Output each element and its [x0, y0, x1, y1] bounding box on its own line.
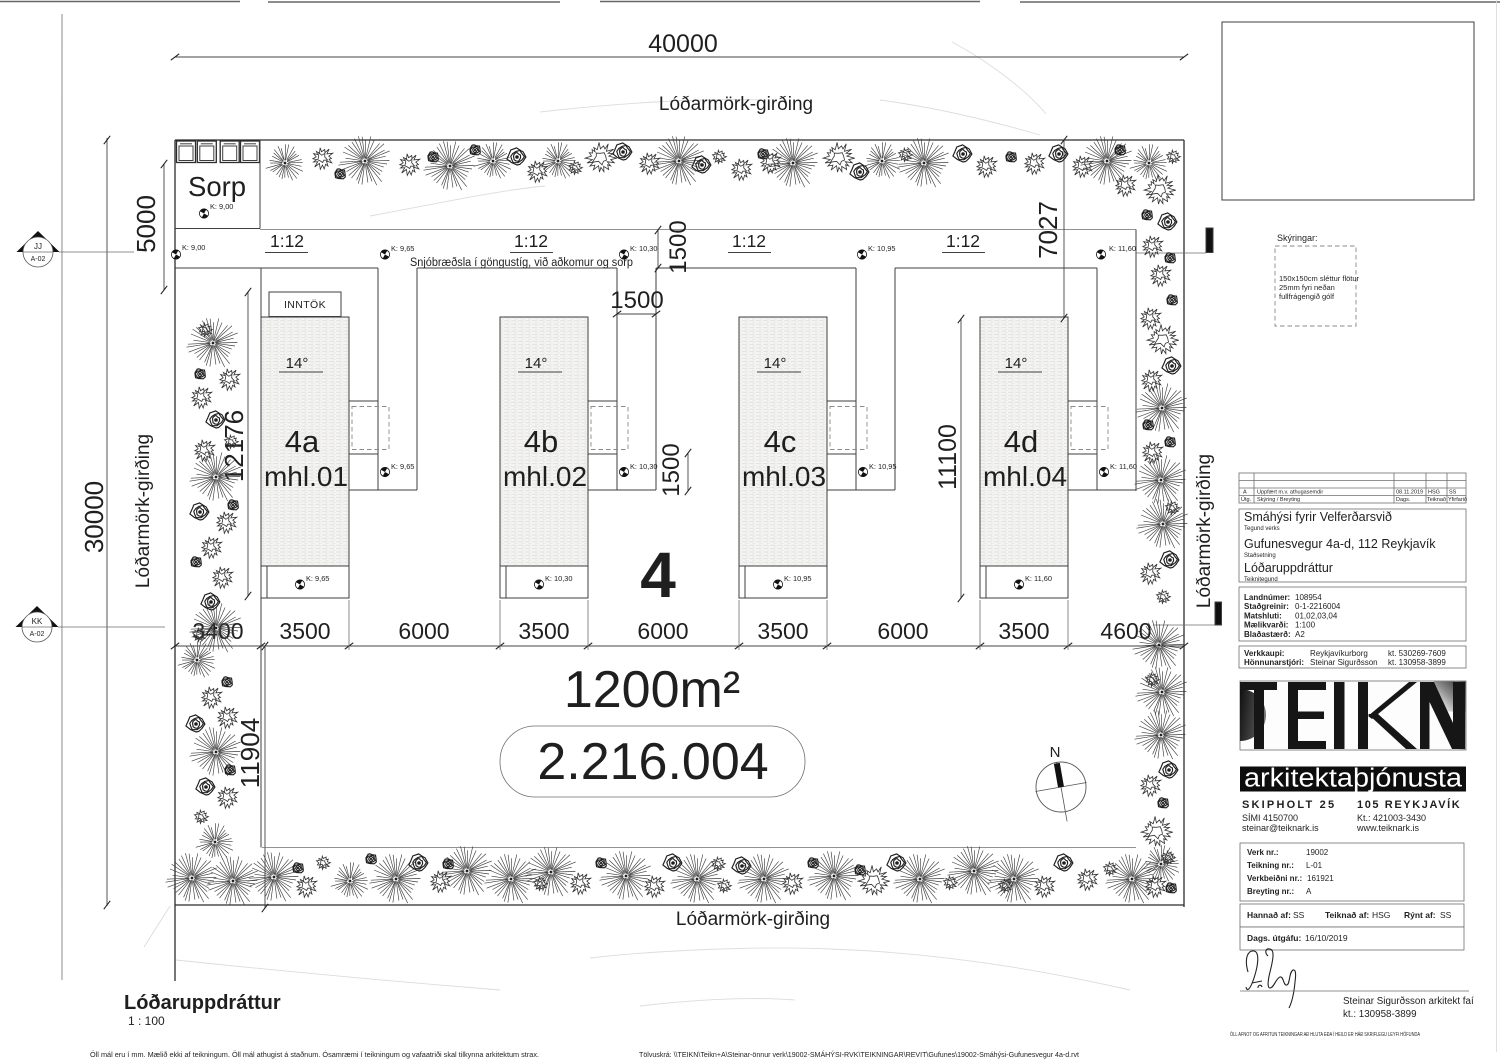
svg-text:Teiknað: Teiknað [1427, 496, 1446, 503]
svg-text:Tegund verks: Tegund verks [1244, 526, 1280, 532]
svg-text:3500: 3500 [279, 618, 330, 644]
svg-text:Skýring / Breyting: Skýring / Breyting [1257, 497, 1300, 503]
svg-text:1:12: 1:12 [270, 231, 304, 251]
svg-text:K: 9,00: K: 9,00 [182, 243, 205, 252]
svg-text:Snjóbræðsla í göngustíg, við a: Snjóbræðsla í göngustíg, við aðkomur og … [410, 257, 633, 269]
svg-text:150x150cm sléttur flötur: 150x150cm sléttur flötur [1279, 274, 1360, 283]
svg-text:3500: 3500 [757, 618, 808, 644]
svg-text:Blaðastærð:: Blaðastærð: [1244, 630, 1291, 639]
svg-text:Kt.: 421003-3430: Kt.: 421003-3430 [1357, 813, 1426, 823]
svg-text:K: 9,65: K: 9,65 [391, 244, 414, 253]
svg-text:Verkkaupi:: Verkkaupi: [1244, 649, 1284, 658]
svg-text:7027: 7027 [1033, 201, 1063, 259]
svg-text:kt. 130958-3899: kt. 130958-3899 [1388, 658, 1446, 667]
svg-text:4d: 4d [1004, 424, 1038, 459]
svg-text:1200m²: 1200m² [564, 661, 740, 719]
svg-text:A: A [1306, 887, 1312, 896]
svg-text:K: 9,65: K: 9,65 [306, 574, 329, 583]
svg-text:Hannað af:: Hannað af: [1247, 910, 1291, 920]
svg-text:K: 10,95: K: 10,95 [869, 462, 897, 471]
svg-text:mhl.01: mhl.01 [264, 461, 348, 492]
svg-text:1 : 100: 1 : 100 [128, 1014, 165, 1028]
svg-text:K: 11,60: K: 11,60 [1109, 244, 1136, 253]
svg-text:Lóðarmörk-girðing: Lóðarmörk-girðing [1194, 454, 1215, 608]
svg-text:HSG: HSG [1428, 490, 1440, 496]
svg-text:11100: 11100 [934, 424, 962, 490]
svg-text:Rýnt af:: Rýnt af: [1404, 910, 1436, 920]
svg-text:Lóðaruppdráttur: Lóðaruppdráttur [1244, 561, 1333, 575]
svg-text:Breyting nr.:: Breyting nr.: [1247, 887, 1294, 896]
svg-text:www.teiknark.is: www.teiknark.is [1356, 823, 1420, 833]
svg-text:Lóðarmörk-girðing: Lóðarmörk-girðing [676, 909, 830, 930]
svg-text:Öll mál eru í mm. Mælið ekki a: Öll mál eru í mm. Mælið ekki af teikning… [90, 1050, 539, 1059]
svg-text:14°: 14° [764, 355, 787, 372]
svg-text:Lóðarmörk-girðing: Lóðarmörk-girðing [659, 94, 813, 115]
svg-text:Teiknitegund: Teiknitegund [1244, 577, 1278, 583]
svg-text:6000: 6000 [398, 618, 449, 644]
svg-text:fullfrágengið gólf: fullfrágengið gólf [1279, 292, 1335, 301]
svg-text:Steinar Sigurðsson arkitekt fa: Steinar Sigurðsson arkitekt faí [1343, 996, 1474, 1007]
svg-text:14°: 14° [1005, 355, 1028, 372]
svg-text:14°: 14° [525, 355, 548, 372]
svg-text:Yfirfarið: Yfirfarið [1448, 496, 1467, 503]
svg-text:08.11.2019: 08.11.2019 [1396, 490, 1423, 496]
svg-text:Verk nr.:: Verk nr.: [1247, 848, 1279, 857]
svg-text:30000: 30000 [79, 481, 109, 553]
svg-text:Hönnunarstjóri:: Hönnunarstjóri: [1244, 658, 1304, 667]
svg-text:3500: 3500 [998, 618, 1049, 644]
svg-text:K: 11,60: K: 11,60 [1110, 462, 1137, 471]
svg-text:Lóðarmörk-girðing: Lóðarmörk-girðing [133, 434, 154, 588]
svg-text:A-02: A-02 [31, 256, 46, 263]
svg-text:1:12: 1:12 [732, 231, 766, 251]
svg-text:2.216.004: 2.216.004 [537, 733, 768, 791]
svg-text:Verkbeiðni nr.:: Verkbeiðni nr.: [1247, 874, 1302, 883]
svg-text:K: 10,30: K: 10,30 [630, 244, 658, 253]
svg-text:4: 4 [640, 539, 676, 611]
svg-text:Steinar Sigurðsson: Steinar Sigurðsson [1310, 658, 1378, 667]
svg-text:6000: 6000 [877, 618, 928, 644]
svg-text:Útg.: Útg. [1241, 496, 1252, 503]
svg-text:Tölvuskrá: \\TEIKN\Teikn+A\St: Tölvuskrá: \\TEIKN\Teikn+A\Steinar-önnur… [639, 1050, 1079, 1059]
svg-text:ÖLL AFNOT OG AFRITUN TEIKNINGA: ÖLL AFNOT OG AFRITUN TEIKNINGAR AÐ HLUTA… [1230, 1031, 1421, 1038]
svg-text:kt. 530269-7609: kt. 530269-7609 [1388, 649, 1446, 658]
svg-text:25mm fyri neðan: 25mm fyri neðan [1279, 283, 1335, 292]
svg-text:Teikning nr.:: Teikning nr.: [1247, 861, 1294, 870]
svg-text:Smáhýsi fyrir Velferðarsvið: Smáhýsi fyrir Velferðarsvið [1244, 510, 1392, 524]
svg-text:14°: 14° [286, 355, 309, 372]
svg-text:6000: 6000 [637, 618, 688, 644]
svg-text:1:100: 1:100 [1295, 621, 1316, 630]
svg-text:108954: 108954 [1295, 593, 1322, 602]
svg-text:SS: SS [1440, 910, 1452, 920]
svg-text:SS: SS [1293, 910, 1305, 920]
svg-text:K: 10,30: K: 10,30 [545, 574, 573, 583]
svg-text:mhl.03: mhl.03 [742, 461, 826, 492]
svg-text:A2: A2 [1295, 630, 1305, 639]
svg-text:K: 9,65: K: 9,65 [391, 462, 414, 471]
svg-text:K: 10,95: K: 10,95 [784, 574, 812, 583]
svg-text:3500: 3500 [518, 618, 569, 644]
svg-text:arkitektaþjónusta: arkitektaþjónusta [1244, 765, 1463, 793]
svg-text:Reykjavíkurborg: Reykjavíkurborg [1310, 649, 1368, 658]
svg-text:Staðsetning: Staðsetning [1244, 552, 1276, 559]
svg-text:N: N [1050, 744, 1061, 761]
svg-text:Mælikvarði:: Mælikvarði: [1244, 621, 1288, 630]
svg-text:mhl.02: mhl.02 [503, 461, 587, 492]
svg-text:L-01: L-01 [1306, 861, 1323, 870]
svg-text:mhl.04: mhl.04 [983, 461, 1067, 492]
svg-text:1:12: 1:12 [946, 231, 980, 251]
svg-text:Landnúmer:: Landnúmer: [1244, 593, 1290, 602]
svg-text:Dags.: Dags. [1396, 497, 1411, 503]
svg-text:KK: KK [32, 617, 43, 626]
svg-text:Dags. útgáfu:: Dags. útgáfu: [1247, 933, 1301, 943]
svg-text:kt.: 130958-3899: kt.: 130958-3899 [1343, 1009, 1417, 1020]
svg-text:19002: 19002 [1306, 848, 1329, 857]
svg-text:1500: 1500 [658, 443, 685, 496]
svg-text:4c: 4c [764, 424, 797, 459]
svg-text:K: 9,00: K: 9,00 [210, 202, 233, 211]
svg-text:4b: 4b [524, 424, 558, 459]
svg-text:Sorp: Sorp [188, 171, 246, 202]
svg-text:0-1-2216004: 0-1-2216004 [1295, 602, 1341, 611]
svg-text:K: 10,95: K: 10,95 [868, 244, 896, 253]
svg-text:K: 10,30: K: 10,30 [630, 462, 658, 471]
svg-text:Skýringar:: Skýringar: [1277, 233, 1318, 243]
svg-text:K: 11,60: K: 11,60 [1025, 574, 1052, 583]
svg-text:4a: 4a [285, 424, 320, 459]
svg-text:JJ: JJ [34, 242, 42, 251]
svg-text:1:12: 1:12 [514, 231, 548, 251]
svg-text:105 REYKJAVÍK: 105 REYKJAVÍK [1357, 798, 1461, 811]
svg-text:Staðgreinir:: Staðgreinir: [1244, 602, 1289, 611]
svg-text:01,02,03,04: 01,02,03,04 [1295, 611, 1338, 620]
svg-text:Gufunesvegur 4a-d, 112 Reykjav: Gufunesvegur 4a-d, 112 Reykjavík [1244, 537, 1436, 551]
svg-text:1500: 1500 [610, 287, 663, 314]
svg-text:SS: SS [1449, 490, 1457, 496]
svg-text:Teiknað af:: Teiknað af: [1325, 910, 1369, 920]
svg-text:HSG: HSG [1372, 910, 1390, 920]
svg-text:A-02: A-02 [30, 631, 45, 638]
svg-text:Uppfært m.v. athugasemdir: Uppfært m.v. athugasemdir [1257, 490, 1323, 496]
svg-text:1500: 1500 [665, 220, 692, 273]
svg-text:steinar@teiknark.is: steinar@teiknark.is [1242, 823, 1319, 833]
svg-text:5000: 5000 [131, 195, 161, 253]
svg-text:SÍMI 4150700: SÍMI 4150700 [1242, 813, 1298, 823]
svg-text:A: A [1243, 490, 1247, 496]
svg-text:INNTÖK: INNTÖK [284, 299, 326, 311]
svg-text:16/10/2019: 16/10/2019 [1305, 933, 1348, 943]
svg-text:SKIPHOLT 25: SKIPHOLT 25 [1242, 799, 1336, 811]
svg-text:Lóðaruppdráttur: Lóðaruppdráttur [124, 992, 281, 1014]
svg-text:Matshluti:: Matshluti: [1244, 611, 1282, 620]
svg-text:161921: 161921 [1307, 874, 1334, 883]
svg-text:40000: 40000 [648, 30, 718, 58]
